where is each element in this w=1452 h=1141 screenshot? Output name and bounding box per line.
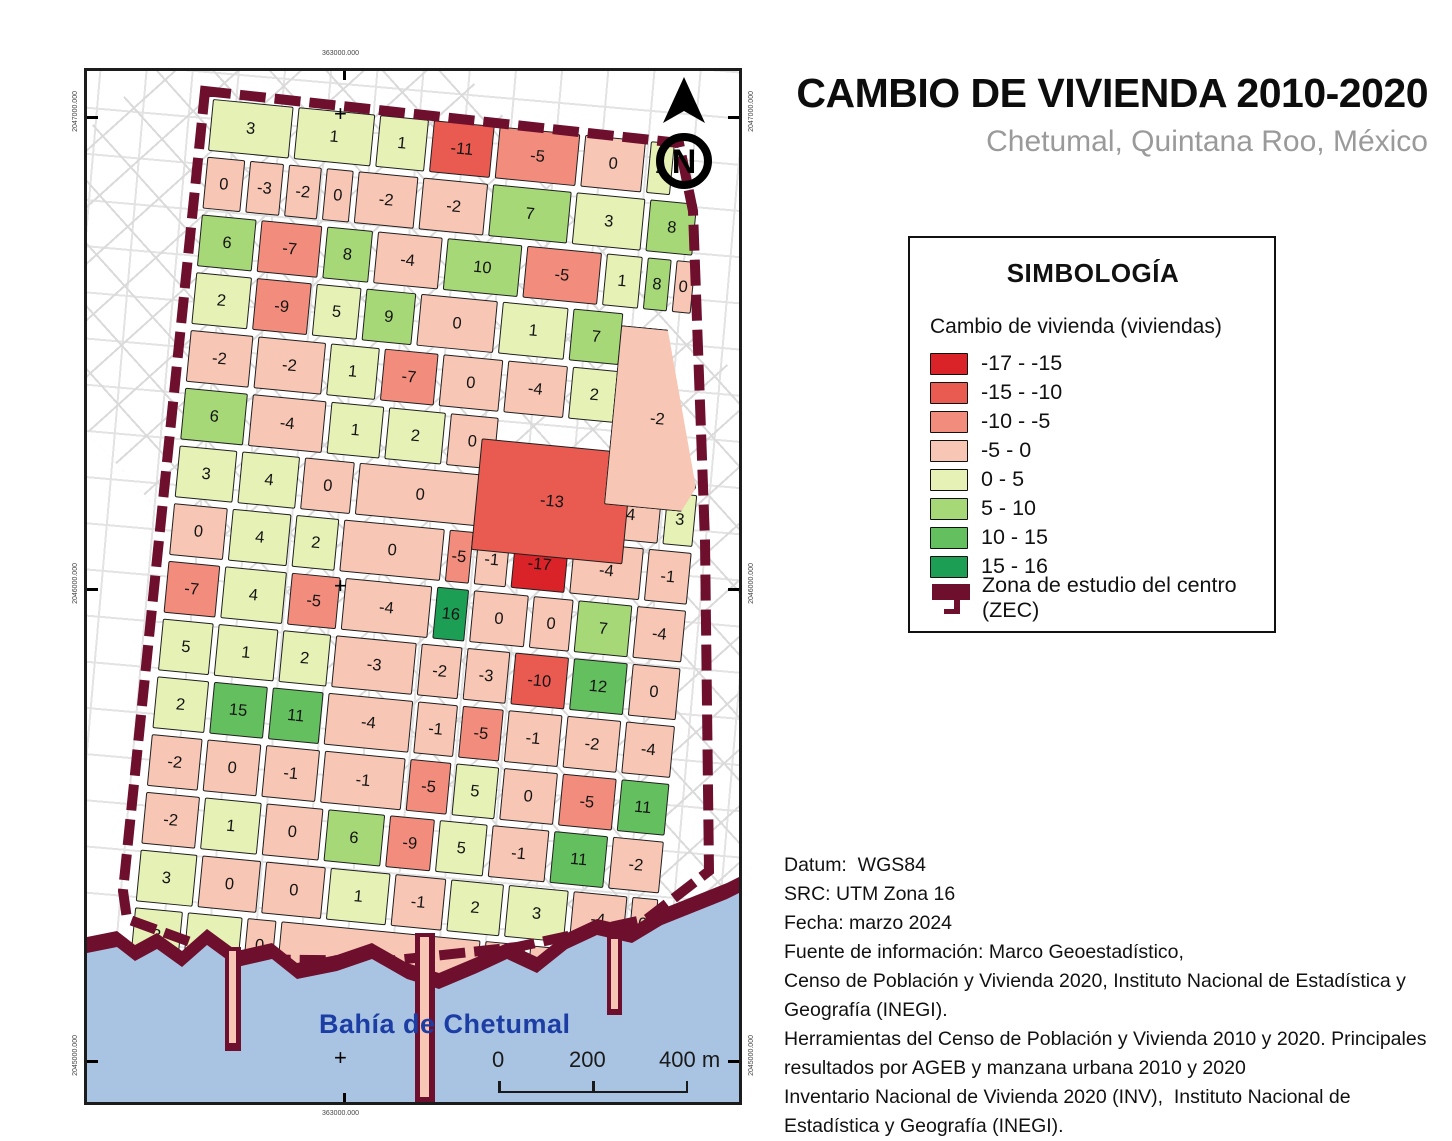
svg-text:N: N: [672, 143, 697, 181]
map-block: 0: [526, 945, 571, 1001]
map-block: 6: [180, 388, 248, 446]
map-block: 0: [262, 862, 326, 919]
map-block: 0: [580, 135, 646, 193]
map-block: -1: [504, 710, 563, 767]
map-block: -5: [558, 774, 617, 831]
coordinate-label: 2046000.000: [748, 563, 755, 604]
map-block: 0: [438, 354, 503, 411]
map-block: 0: [528, 596, 573, 652]
city-blocks-grid: 311-11-5020-3-20-2-27386-78-410-51802-95…: [130, 99, 731, 1015]
map-block: 4: [228, 509, 292, 566]
map-block: 1: [375, 115, 429, 171]
graticule-cross: +: [334, 573, 347, 599]
map-block: -2: [253, 336, 326, 394]
map-block: 3: [504, 885, 568, 942]
metadata-line: Fuente de información: Marco Geoestadíst…: [784, 938, 1444, 967]
map-block: 0: [499, 768, 558, 825]
map-block: 2: [191, 272, 251, 329]
map-block: 0: [197, 855, 261, 912]
map-block: -3: [331, 635, 417, 695]
metadata-line: Inventario Nacional de Vivienda 2020 (IN…: [784, 1083, 1444, 1112]
legend-zec-label: Zona de estudio del centro (ZEC): [982, 573, 1256, 623]
map-block: 7: [569, 309, 624, 366]
map-block: 16: [432, 587, 469, 642]
legend-swatch: [930, 353, 968, 375]
map-block: 0: [322, 168, 354, 222]
map-block: 6: [197, 214, 257, 271]
map-block: 5: [312, 284, 362, 340]
map-block: -1: [261, 745, 320, 802]
map-block: 1: [326, 868, 390, 925]
map-block: -4: [503, 360, 568, 417]
map-block: -4: [324, 693, 413, 753]
legend-item: 0 - 5: [930, 465, 1256, 494]
map-block: -9: [385, 815, 435, 871]
map-block: 2: [152, 676, 208, 733]
map-header: CAMBIO DE VIVIENDA 2010-2020 Chetumal, Q…: [760, 70, 1428, 159]
map-block: 2: [446, 879, 504, 936]
map-block: 2: [278, 630, 331, 686]
map-block: 5: [435, 820, 488, 876]
map-block: 12: [569, 658, 628, 715]
legend-swatch: [930, 469, 968, 491]
map-block: -4: [340, 578, 432, 638]
legend-item: 10 - 15: [930, 523, 1256, 552]
map-block: 0: [671, 260, 695, 314]
coordinate-label: 2046000.000: [72, 563, 79, 604]
map-block: -2: [419, 178, 489, 236]
map-block: 6: [323, 809, 385, 866]
page-subtitle: Chetumal, Quintana Roo, México: [760, 125, 1428, 159]
map-block: 0: [202, 157, 245, 212]
map-block: -5: [522, 246, 602, 305]
graticule-cross: +: [334, 101, 347, 127]
coordinate-label: 2047000.000: [72, 91, 79, 132]
metadata-line: Herramientas del Censo de Población y Vi…: [784, 1025, 1444, 1054]
map-block: 5: [451, 763, 499, 819]
map-block: 1: [602, 253, 643, 308]
map-block: 1: [214, 624, 278, 681]
map-block: -10: [510, 652, 569, 709]
map-block: 2: [292, 515, 340, 571]
bay-label: Bahía de Chetumal: [319, 1009, 571, 1040]
map-block: 0: [416, 294, 498, 353]
legend-swatch: [930, 411, 968, 433]
legend-box: SIMBOLOGÍA Cambio de vivienda (viviendas…: [908, 236, 1276, 633]
legend-subtitle: Cambio de vivienda (viviendas): [930, 315, 1256, 339]
legend-item: -17 - -15: [930, 349, 1256, 378]
map-block: 0: [243, 918, 277, 973]
map-block: 0: [340, 520, 445, 581]
legend-zec-item: Zona de estudio del centro (ZEC): [930, 581, 1256, 615]
map-block: -2: [563, 716, 622, 773]
map-block: 8: [642, 257, 671, 311]
metadata-line: Fecha: marzo 2024: [784, 909, 1444, 938]
coordinate-label: 2045000.000: [72, 1035, 79, 1076]
map-block: 11: [549, 831, 608, 888]
scale-0: 0: [492, 1047, 504, 1073]
legend-swatch: [930, 527, 968, 549]
scale-200: 200: [569, 1047, 606, 1073]
map-block: 4: [220, 566, 287, 624]
coordinate-label: 363000.000: [322, 50, 359, 57]
metadata-line: Geografía (INEGI).: [784, 996, 1444, 1025]
map-block: 1: [326, 343, 380, 399]
map-block: -2: [186, 330, 253, 388]
map-block: -7: [164, 561, 220, 618]
legend-item-label: 5 - 10: [981, 496, 1036, 521]
map-block: -5: [495, 127, 580, 187]
map-block: -1: [320, 751, 406, 811]
legend-item: -5 - 0: [930, 436, 1256, 465]
map-block: -5: [406, 759, 451, 815]
map-block: 0: [627, 897, 658, 951]
page-title: CAMBIO DE VIVIENDA 2010-2020: [760, 70, 1428, 117]
metadata-line: resultados por AGEB y manzana urbana 201…: [784, 1054, 1444, 1083]
map-block: -5: [458, 706, 503, 762]
map-block: -2: [141, 792, 200, 849]
map-block: 0: [301, 458, 356, 515]
map-block: 7: [574, 600, 633, 657]
map-block: 0: [469, 590, 528, 647]
map-block: -2: [284, 165, 322, 220]
legend-swatch: [930, 440, 968, 462]
metadata-line: Estadística y Geografía (INEGI).: [784, 1112, 1444, 1141]
map-block: -11: [429, 120, 495, 178]
legend-swatch: [930, 498, 968, 520]
map-block: 5: [158, 619, 214, 676]
map-block: 1: [183, 912, 243, 969]
map-block: 7: [489, 184, 572, 243]
legend-item: -15 - -10: [930, 378, 1256, 407]
map-block: 0: [570, 950, 615, 1006]
map-block: -4: [373, 231, 443, 289]
map-block: -5: [445, 530, 474, 584]
map-block: -9: [252, 278, 312, 335]
map-block: -3: [462, 648, 510, 704]
map-block: 2: [385, 407, 447, 464]
map-block: -2: [147, 734, 203, 791]
map-block: -4: [633, 606, 687, 662]
map-block: 0: [355, 463, 485, 527]
map-block: 1: [326, 402, 384, 459]
map-block: -3: [245, 161, 283, 216]
map-block: 0: [262, 803, 324, 860]
map-block: -4: [569, 891, 627, 948]
legend-item-label: 0 - 5: [981, 467, 1024, 492]
legend-item: 5 - 10: [930, 494, 1256, 523]
legend-item-label: -10 - -5: [981, 409, 1050, 434]
map-block: 3: [572, 192, 646, 250]
metadata-block: Datum: WGS84SRC: UTM Zona 16Fecha: marzo…: [784, 851, 1444, 1141]
map-block: 1: [498, 302, 569, 360]
scale-bar: [498, 1083, 688, 1093]
map-block: 0: [627, 664, 680, 720]
legend-item-label: 10 - 15: [981, 525, 1048, 550]
map-block: -1: [488, 825, 550, 882]
map-block: 0: [203, 739, 262, 796]
map-block: 3: [136, 850, 197, 907]
map-block: 0: [276, 921, 480, 992]
map-block: 8: [646, 199, 698, 255]
coordinate-label: 2045000.000: [748, 1035, 755, 1076]
metadata-line: Censo de Población y Vivienda 2020, Inst…: [784, 967, 1444, 996]
coordinate-label: 2047000.000: [748, 91, 755, 132]
map-block: -2: [417, 644, 462, 700]
map-block: 15: [209, 682, 268, 739]
zec-boundary-icon: [930, 580, 976, 616]
legend-title: SIMBOLOGÍA: [930, 258, 1256, 289]
map-block: 1: [200, 797, 262, 854]
legend-swatch: [930, 382, 968, 404]
map-block: 9: [361, 289, 416, 346]
map-block: 0: [615, 954, 652, 1009]
map-block: -1: [644, 549, 692, 605]
graticule-cross: +: [334, 1045, 347, 1071]
map-block: -1: [413, 701, 458, 757]
north-arrow-icon: N: [655, 73, 713, 200]
legend-item-label: -15 - -10: [981, 380, 1062, 405]
map-block: -2: [608, 837, 664, 894]
map-block: 11: [616, 779, 669, 835]
map-block: -7: [257, 220, 322, 278]
map-block: 3: [130, 907, 183, 963]
map-block: 11: [268, 687, 324, 744]
metadata-line: Datum: WGS84: [784, 851, 1444, 880]
scale-400: 400 m: [659, 1047, 720, 1073]
map-block: -2: [354, 171, 419, 229]
map-block: 8: [322, 227, 373, 283]
map-block: 0: [169, 503, 228, 560]
legend-item-label: -5 - 0: [981, 438, 1031, 463]
map-block: -4: [622, 721, 676, 777]
map-block: 3: [208, 99, 293, 159]
metadata-line: SRC: UTM Zona 16: [784, 880, 1444, 909]
legend-swatch: [930, 556, 968, 578]
map-block: -4: [248, 394, 326, 453]
map-block: 4: [238, 451, 301, 508]
map-block: 3: [175, 445, 238, 502]
map-block: -7: [379, 349, 438, 406]
map-block: 10: [443, 238, 523, 297]
map-block: 0: [481, 941, 526, 997]
legend-items: -17 - -15-15 - -10-10 - -5-5 - 00 - 55 -…: [930, 349, 1256, 581]
legend-item: -10 - -5: [930, 407, 1256, 436]
map-panel: 311-11-5020-3-20-2-27386-78-410-51802-95…: [84, 68, 742, 1105]
legend-item-label: -17 - -15: [981, 351, 1062, 376]
coordinate-label: 363000.000: [322, 1110, 359, 1117]
map-block: -5: [287, 573, 341, 629]
map-block: -1: [391, 874, 446, 931]
